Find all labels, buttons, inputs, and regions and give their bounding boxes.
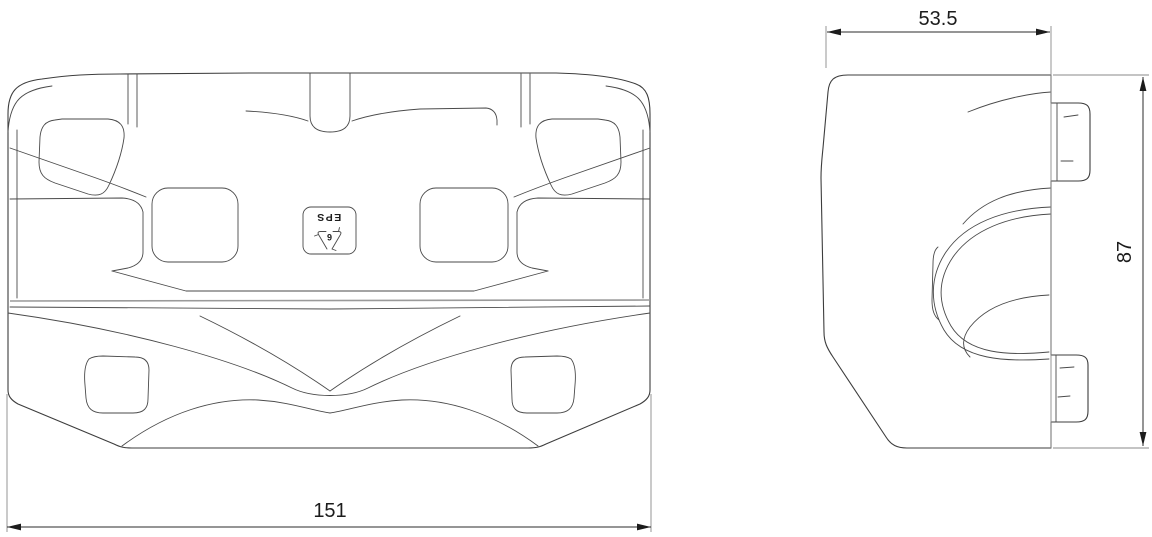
recycling-code-icon: 6	[315, 228, 341, 251]
side-cavity-outer	[933, 207, 1051, 360]
front-hammock-upper	[8, 313, 650, 396]
front-top-rib-left	[128, 74, 137, 127]
front-diagonal-right	[514, 148, 650, 197]
side-height-arrow-bottom	[1140, 432, 1147, 446]
front-outline	[8, 73, 650, 448]
technical-drawing-sheet: 6 EPS 151 53.5	[0, 0, 1152, 537]
front-top-rib-right	[521, 74, 530, 127]
material-label: EPS	[316, 211, 342, 223]
resin-code-number: 6	[327, 232, 332, 242]
front-inner-corner-left	[8, 86, 52, 132]
front-notch-approach-left	[246, 111, 308, 121]
front-band-line-light	[10, 300, 650, 301]
side-width-arrow-left	[827, 29, 841, 36]
side-width-arrow-right	[1036, 29, 1050, 36]
front-lower-pocket-right	[511, 356, 575, 413]
front-view: 6 EPS	[8, 73, 650, 448]
front-notch-approach-right	[352, 108, 497, 125]
side-cavity-inner	[941, 214, 1051, 354]
front-shelf-left	[10, 198, 143, 271]
side-top-arc	[968, 92, 1051, 112]
front-inner-corner-right	[606, 86, 650, 132]
front-mid-pocket-left	[152, 188, 238, 262]
front-recess-bottom	[112, 271, 548, 291]
eps-marking: 6 EPS	[303, 207, 356, 254]
front-top-notch	[310, 73, 350, 132]
side-height-value: 87	[1114, 241, 1136, 263]
side-height-arrow-top	[1140, 77, 1147, 91]
dimension-front-width: 151	[7, 394, 651, 532]
side-cavity-step	[964, 295, 1049, 357]
side-view	[821, 75, 1090, 448]
front-lower-pocket-left	[85, 356, 149, 413]
side-upper-tab-detail	[1057, 103, 1078, 181]
front-width-arrow-right	[637, 524, 651, 531]
front-cross-diagonal-left	[200, 316, 330, 391]
front-diagonal-left	[10, 148, 146, 197]
side-cavity-upper-arm	[963, 188, 1051, 224]
side-width-value: 53.5	[919, 8, 958, 30]
dimension-side-width: 53.5	[826, 8, 1051, 448]
front-width-arrow-left	[7, 524, 21, 531]
side-lower-tab-detail	[1056, 355, 1074, 422]
dimension-side-height: 87	[1053, 75, 1149, 448]
front-hammock-lower	[122, 400, 538, 446]
front-cross-diagonal-right	[330, 316, 460, 391]
front-shelf-right	[517, 198, 650, 271]
front-width-value: 151	[313, 500, 346, 522]
side-outline	[821, 75, 1090, 448]
drawing-svg: 6 EPS 151 53.5	[0, 0, 1152, 537]
front-mid-pocket-right	[420, 188, 508, 262]
front-band-line	[10, 306, 650, 309]
